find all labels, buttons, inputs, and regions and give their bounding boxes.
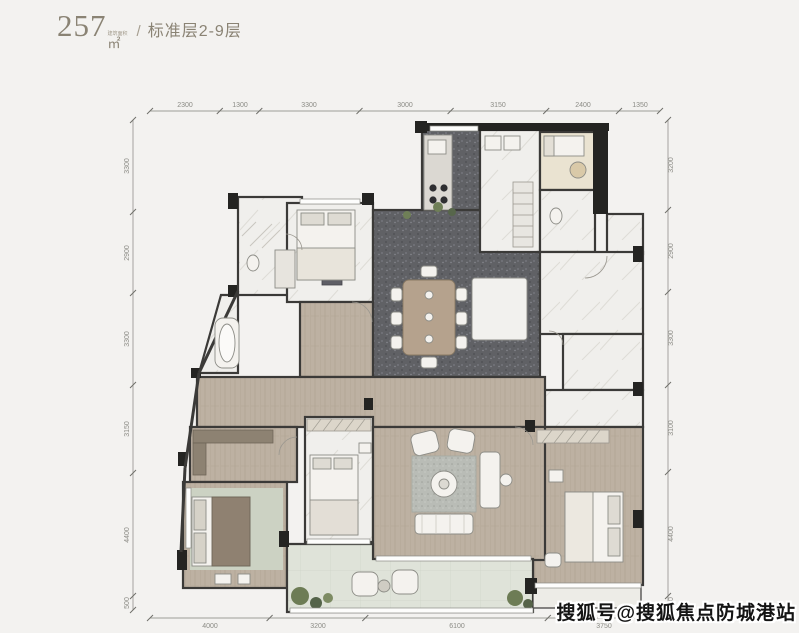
armchair [446,428,475,454]
plant-icon [507,590,523,606]
closet-strip-floor [533,390,643,427]
toilet-1 [247,255,259,271]
master-dresser [238,574,250,584]
outdoor-chair [352,572,378,596]
dim-top-2: 1300 [232,102,248,109]
dim-top-3: 3300 [301,102,317,109]
floor-plan-svg: 2300 1300 3300 3000 3150 2400 1350 4000 … [0,0,799,633]
bath-3-floor [563,334,643,390]
corridor-vertical [300,302,373,377]
plant-icon [448,208,456,216]
chaise-sofa [480,452,500,508]
window [535,583,641,588]
toilet-2 [550,208,562,224]
dim-right-5: 4400 [668,526,675,542]
dim-bottom-3: 6100 [449,623,465,630]
dining-chair [421,357,437,368]
dining-chair [456,288,467,301]
dressing-wardrobe-side [193,443,206,475]
bathtub-basin [219,324,235,362]
bed-4-blanket [565,492,593,562]
dim-right-1: 3200 [668,157,675,173]
dimension-right: 3200 2900 3300 3100 4400 500 [665,117,675,613]
window [376,556,531,561]
chair-4 [545,553,561,567]
dim-left-6: 500 [124,597,131,609]
nightstand-4 [549,470,563,482]
dining-chair [421,266,437,277]
dining-chair [456,336,467,349]
master-pillow [194,533,206,563]
dim-left-2: 2900 [124,245,131,261]
watermark: 搜狐号@搜狐焦点防城港站 [556,598,796,625]
dining-chair [391,312,402,325]
dim-right-4: 3100 [668,420,675,436]
bed-4-pillow [608,528,620,556]
bed-4-pillow [608,496,620,524]
dim-bottom-2: 3200 [310,623,326,630]
dimension-left: 3300 2900 3300 3150 4400 500 [124,117,136,613]
side-table [500,474,512,486]
dim-bottom-1: 4000 [202,623,218,630]
dim-right-3: 3300 [668,330,675,346]
bath-2-floor [540,190,595,252]
dimension-top: 2300 1300 3300 3000 3150 2400 1350 [147,102,663,114]
dim-left-1: 3300 [124,158,131,174]
dryer [504,136,520,150]
kitchen-sink [428,140,446,154]
dim-left-4: 3150 [124,421,131,437]
plant-icon [523,599,533,609]
window [300,199,360,204]
balcony-railing [290,608,533,613]
dim-left-5: 4400 [124,527,131,543]
outdoor-chair [392,570,418,594]
plant-icon [323,593,333,603]
dim-left-3: 3300 [124,331,131,347]
maid-pillow [544,136,554,156]
plant-icon [291,587,309,605]
window [186,488,191,548]
dining-chair [456,312,467,325]
window [430,126,478,131]
dining-chair [391,288,402,301]
bed-2-pillow [328,213,351,225]
nightstand-3 [359,443,371,453]
basin [570,162,586,178]
master-dresser [215,574,231,584]
dim-top-4: 3000 [397,102,413,109]
window [307,539,370,544]
master-pillow [194,500,206,530]
bed-2-pillow [301,213,324,225]
hall-floor [540,252,643,334]
washer [485,136,501,150]
master-blanket [212,497,250,566]
plant-icon [403,211,411,219]
dim-top-1: 2300 [177,102,193,109]
kitchen-island [472,278,527,340]
bed-2-blanket [297,248,355,280]
plant-icon [433,202,443,212]
dining-chair [391,336,402,349]
bed-3-pillow [313,458,331,469]
dim-right-2: 2900 [668,243,675,259]
dim-top-7: 1350 [632,102,648,109]
dim-top-5: 3150 [490,102,506,109]
outdoor-table [378,580,390,592]
vanity-1 [275,250,295,288]
bed-3-pillow [334,458,352,469]
dim-top-6: 2400 [575,102,591,109]
bed-3-blanket [310,500,358,535]
plant-icon [310,597,322,609]
dressing-wardrobe-top [193,430,273,443]
